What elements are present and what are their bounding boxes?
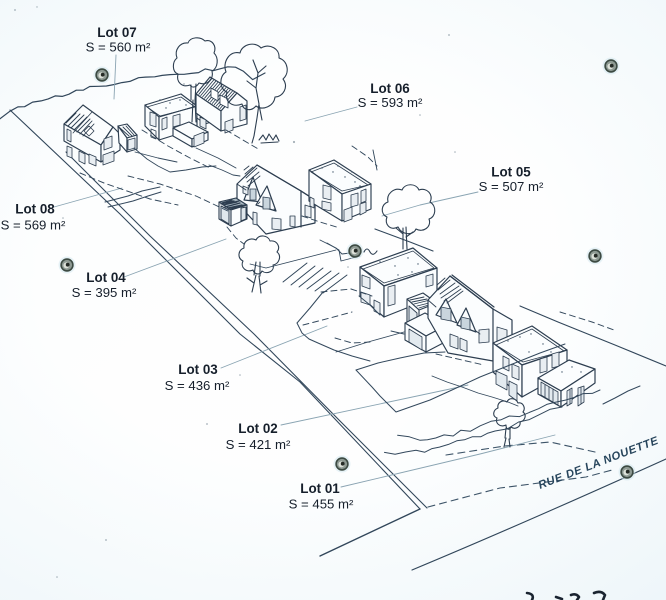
svg-text:Lot 06: Lot 06 — [370, 81, 409, 96]
svg-text:S = 507 m²: S = 507 m² — [479, 179, 544, 194]
svg-text:Lot 08: Lot 08 — [15, 202, 55, 217]
svg-text:Lot 07: Lot 07 — [97, 25, 136, 40]
svg-text:S = 436 m²: S = 436 m² — [165, 378, 230, 393]
svg-text:Lot 01: Lot 01 — [300, 481, 340, 496]
svg-text:S = 560 m²: S = 560 m² — [86, 40, 151, 55]
svg-text:S = 455 m²: S = 455 m² — [289, 497, 354, 512]
svg-text:Lot 05: Lot 05 — [491, 165, 531, 180]
svg-text:S = 593 m²: S = 593 m² — [358, 95, 423, 110]
svg-text:S = 569 m²: S = 569 m² — [1, 218, 66, 233]
svg-text:Lot 03: Lot 03 — [178, 362, 217, 377]
svg-text:Lot 04: Lot 04 — [86, 270, 126, 285]
svg-text:S = 421 m²: S = 421 m² — [226, 437, 291, 452]
svg-text:S = 395 m²: S = 395 m² — [72, 285, 137, 300]
svg-text:Lot 02: Lot 02 — [238, 421, 277, 436]
